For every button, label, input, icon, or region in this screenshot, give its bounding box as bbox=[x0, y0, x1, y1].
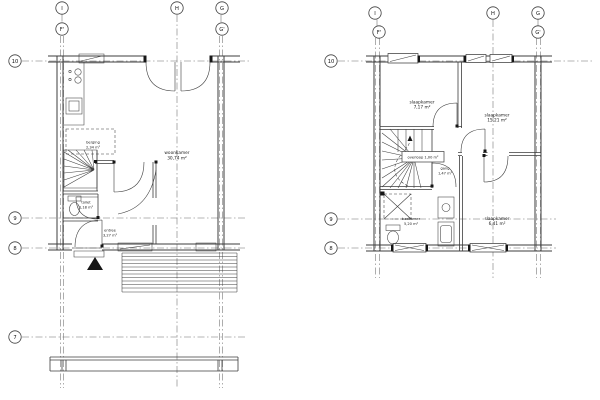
gf-grid-bubble-f-accent: F' bbox=[60, 27, 64, 33]
gf-grid-bubble-10: 10 bbox=[12, 59, 19, 65]
room-area-gang: 1,47 m² bbox=[438, 172, 453, 176]
room-area-slaapkamer-2: 15,21 m² bbox=[487, 118, 507, 124]
room-label-entree: entree bbox=[104, 229, 117, 233]
room-area-slaapkamer-3: 6,41 m² bbox=[489, 221, 506, 227]
room-label-woonkamer: woonkamer bbox=[164, 150, 189, 156]
ff-grid-bubble-g-accent: G' bbox=[535, 30, 540, 36]
room-area-slaapkamer-1: 7,17 m² bbox=[414, 105, 431, 111]
ff-grid-bubble-8: 8 bbox=[329, 246, 332, 252]
gf-grid-bubble-8: 8 bbox=[13, 246, 16, 252]
ff-grid-bubble-9: 9 bbox=[329, 217, 332, 223]
room-area-berging: 2,34 m² bbox=[86, 146, 101, 150]
room-label-gang: gang bbox=[440, 167, 449, 171]
gf-grid-bubble-9: 9 bbox=[13, 216, 16, 222]
ff-grid-bubble-h: H bbox=[491, 11, 495, 17]
room-label-badkamer: badkamer bbox=[402, 217, 421, 221]
floor-plan-drawing: I H G F' G' 10 9 8 7 bbox=[0, 0, 600, 400]
ff-grid-bubble-10: 10 bbox=[328, 59, 335, 65]
gf-grid-bubble-h: H bbox=[175, 6, 179, 12]
gf-grid-bubble-7: 7 bbox=[13, 335, 16, 341]
room-label-overloop: overloop 1,00 m² bbox=[408, 156, 439, 160]
room-label-berging: berging bbox=[86, 141, 100, 145]
ff-grid-bubble-g: G bbox=[536, 11, 540, 17]
gf-grid-bubble-g-accent: G' bbox=[219, 27, 224, 33]
gf-grid-bubble-g: G bbox=[220, 6, 224, 12]
room-area-woonkamer: 30,74 m² bbox=[167, 156, 187, 162]
room-label-toilet: toilet bbox=[81, 201, 91, 205]
duct-mark bbox=[381, 192, 385, 196]
room-area-badkamer: 5,20 m² bbox=[404, 222, 419, 226]
room-area-toilet: 1,18 m² bbox=[79, 206, 94, 210]
room-area-entree: 3,27 m² bbox=[103, 234, 118, 238]
ff-grid-bubble-f-accent: F' bbox=[377, 30, 381, 36]
